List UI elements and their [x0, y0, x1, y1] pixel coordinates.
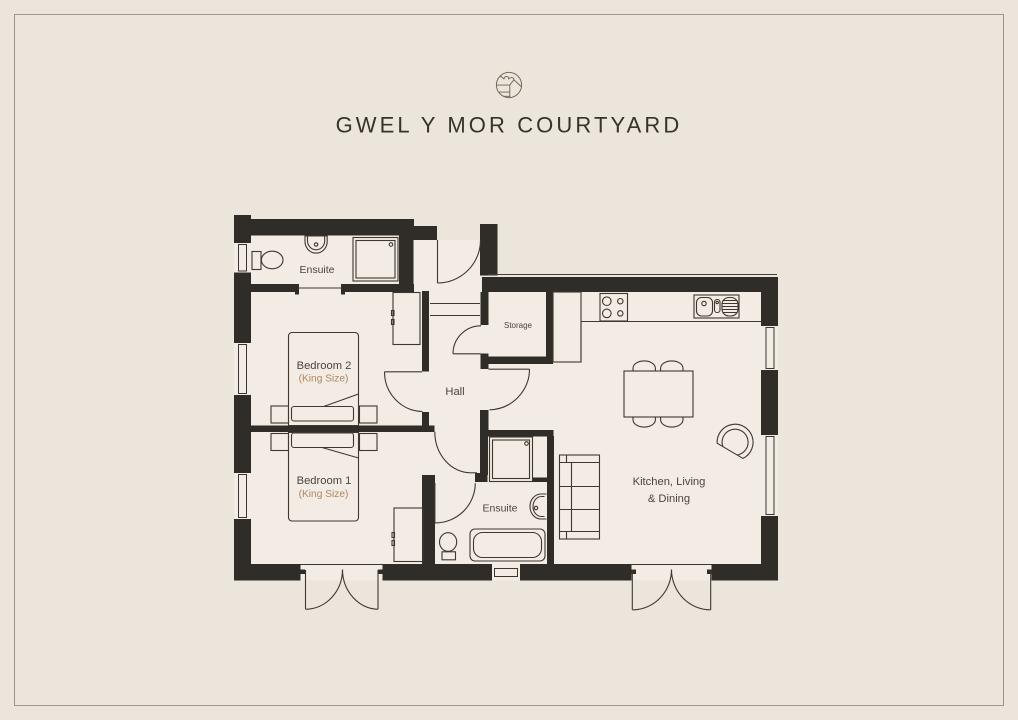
svg-text:Bedroom 2: Bedroom 2: [297, 360, 352, 372]
svg-text:Bedroom 1: Bedroom 1: [297, 475, 352, 487]
svg-text:(King Size): (King Size): [299, 374, 349, 385]
svg-text:Storage: Storage: [504, 321, 533, 330]
svg-text:(King Size): (King Size): [299, 489, 349, 500]
svg-text:Ensuite: Ensuite: [482, 503, 517, 515]
svg-text:& Dining: & Dining: [648, 493, 690, 505]
svg-text:Ensuite: Ensuite: [299, 264, 334, 276]
svg-text:Kitchen, Living: Kitchen, Living: [633, 476, 706, 488]
svg-text:Hall: Hall: [445, 386, 464, 398]
svg-text:GWEL Y MOR COURTYARD: GWEL Y MOR COURTYARD: [336, 113, 683, 138]
